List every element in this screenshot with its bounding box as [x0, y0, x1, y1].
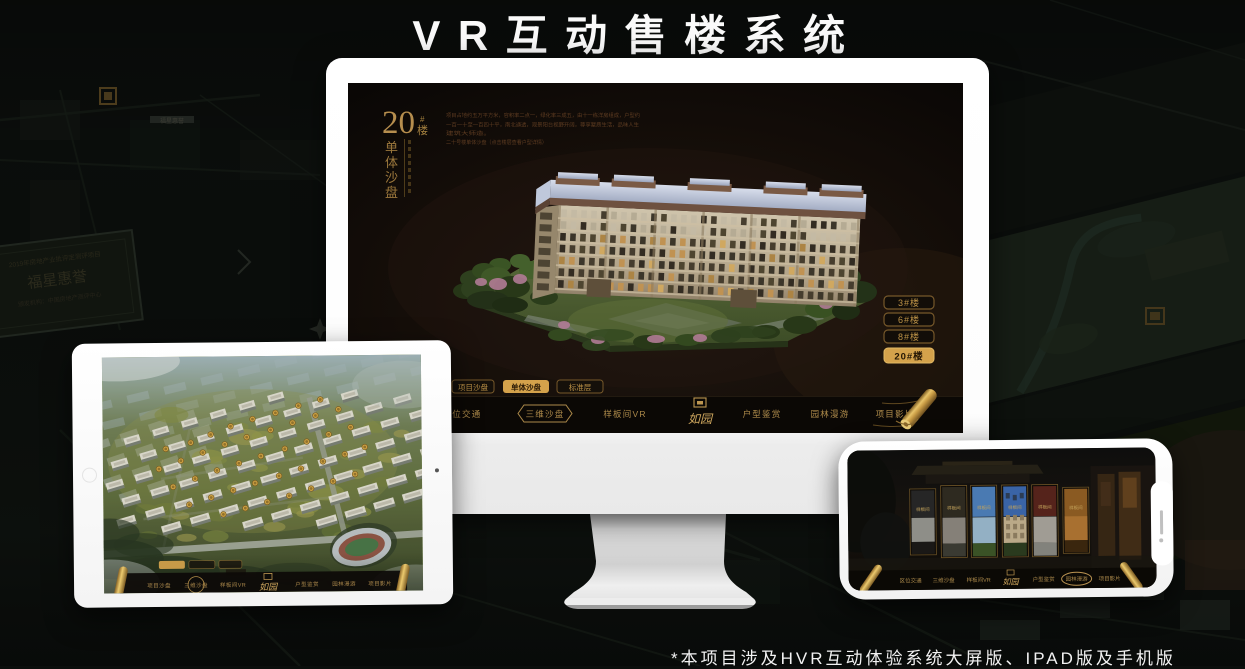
svg-text:8#楼: 8#楼	[898, 331, 920, 342]
svg-text:3#楼: 3#楼	[898, 297, 920, 308]
svg-text:项目沙盘: 项目沙盘	[147, 581, 171, 589]
svg-text:项目占地约五万平方米，容积率二点一，绿化率三成五，由十一栋洋: 项目占地约五万平方米，容积率二点一，绿化率三成五，由十一栋洋房组成，户型约	[446, 111, 640, 119]
svg-text:项目影片: 项目影片	[1099, 574, 1121, 582]
svg-text:样板间VR: 样板间VR	[967, 576, 991, 584]
svg-text:20: 20	[382, 105, 415, 141]
svg-text:盘: 盘	[385, 185, 398, 200]
svg-text:20#楼: 20#楼	[894, 351, 923, 363]
svg-text:区位交通: 区位交通	[900, 576, 923, 584]
svg-text:楼: 楼	[417, 123, 428, 137]
svg-text:三维沙盘: 三维沙盘	[933, 576, 956, 584]
svg-text:项目沙盘: 项目沙盘	[458, 382, 488, 392]
svg-text:园林漫游: 园林漫游	[811, 409, 850, 419]
svg-text:如园: 如园	[688, 412, 714, 426]
svg-text:标准层: 标准层	[569, 382, 592, 392]
svg-text:项目影片: 项目影片	[368, 579, 392, 587]
svg-text:二十号楼单体沙盘（点击楼层查看户型详情）: 二十号楼单体沙盘（点击楼层查看户型详情）	[446, 138, 547, 146]
svg-text:三维沙盘: 三维沙盘	[526, 409, 565, 419]
svg-text:单: 单	[385, 140, 398, 155]
svg-text:户型鉴赏: 户型鉴赏	[1033, 575, 1056, 583]
svg-text:样板间VR: 样板间VR	[220, 581, 246, 589]
svg-text:样板间VR: 样板间VR	[603, 409, 646, 419]
svg-text:福星惠誉: 福星惠誉	[160, 117, 184, 125]
svg-text:建筑大师造。: 建筑大师造。	[446, 129, 491, 137]
svg-text:体: 体	[385, 155, 398, 170]
svg-text:户型鉴赏: 户型鉴赏	[743, 409, 782, 419]
svg-text:6#楼: 6#楼	[898, 314, 920, 325]
svg-text:一百一十至一百四十平，南北通透，观景阳台视野开阔，尊享墅质生: 一百一十至一百四十平，南北通透，观景阳台视野开阔，尊享墅质生活，品味人生	[446, 121, 639, 129]
svg-text:沙: 沙	[385, 170, 398, 185]
svg-text:#: #	[420, 115, 425, 124]
svg-text:户型鉴赏: 户型鉴赏	[295, 580, 319, 588]
svg-text:园林漫游: 园林漫游	[1066, 575, 1089, 583]
svg-text:如园: 如园	[1003, 577, 1020, 586]
svg-text:如园: 如园	[259, 582, 279, 592]
svg-text:单体沙盘: 单体沙盘	[511, 382, 541, 392]
svg-text:园林漫游: 园林漫游	[332, 580, 356, 588]
